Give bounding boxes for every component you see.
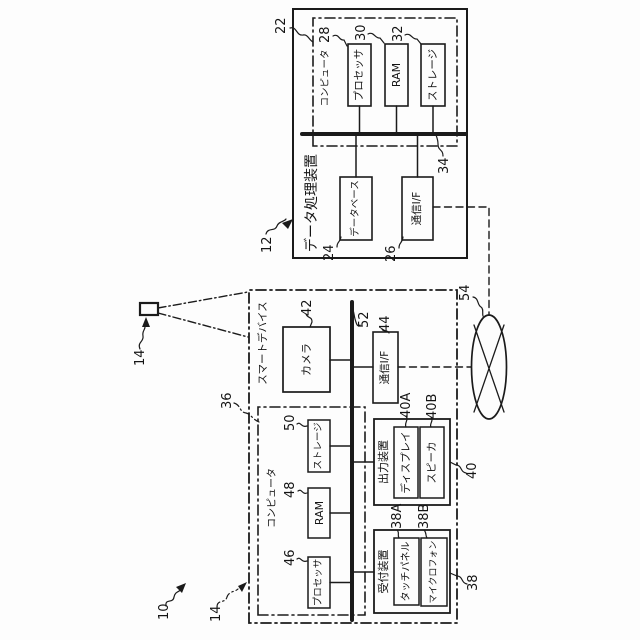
data-processing-device-label: データ処理装置 [304,142,319,252]
ref-50: 50 [284,414,297,431]
microphone-label: マイクロフォン [421,538,447,606]
camera-label: カメラ [283,327,330,392]
ref-40A: 40A [400,393,413,418]
ref-14-device: 14 [210,605,223,622]
server-storage-label: ストレージ [421,44,445,106]
database-label: データベース [340,177,372,240]
speaker-label: スピーカ [420,427,444,498]
device-processor-label: プロセッサ [308,557,330,608]
reception-device-label: 受付装置 [377,530,390,613]
ref-46: 46 [284,549,297,566]
ref-10: 10 [158,603,171,620]
arrowhead-14-camera [142,317,150,327]
ref-44: 44 [379,315,392,332]
ref-30: 30 [355,24,368,41]
device-comm-if-label: 通信I/F [373,332,398,403]
ref-24: 24 [323,244,336,261]
ref-26: 26 [385,245,398,262]
ref-22: 22 [275,17,288,34]
ref-48: 48 [284,481,297,498]
ref-14-camera: 14 [134,349,147,366]
ref-52: 52 [358,311,371,328]
leader-arrowheads [142,219,293,593]
ref-32: 32 [392,25,405,42]
ref-38A: 38A [391,504,404,529]
server-processor-label: プロセッサ [348,44,371,106]
ref-42: 42 [301,299,314,316]
ref-40B: 40B [426,394,439,419]
server-computer-label: コンピュータ [320,50,332,106]
camera-sightline-2 [158,313,248,337]
ref-38: 38 [467,574,480,591]
ref-40: 40 [466,462,479,479]
device-ram-label: RAM [308,488,330,538]
server-ram-label: RAM [385,44,408,106]
smart-device-label: スマートデバイス [257,297,270,389]
patent-figure: データ処理装置 コンピュータ プロセッサ RAM ストレージ データベース 通信… [0,0,640,640]
device-computer-label: コンピュータ [266,466,279,530]
server-comm-if-label: 通信I/F [402,177,433,240]
ref-36: 36 [221,392,234,409]
figure-rotated-stage: データ処理装置 コンピュータ プロセッサ RAM ストレージ データベース 通信… [0,0,640,640]
external-camera-icon [140,303,158,315]
ref-28: 28 [319,26,332,43]
ref-54: 54 [459,284,472,301]
device-storage-label: ストレージ [308,420,330,472]
network-symbol-cross [474,325,504,412]
ref-12: 12 [261,236,274,253]
camera-sightline-1 [158,292,248,308]
output-device-label: 出力装置 [377,419,390,505]
arrowhead-14-device [238,582,247,592]
touch-panel-label: タッチパネル [394,538,419,605]
ref-38B: 38B [418,504,431,529]
ref-34: 34 [438,157,451,174]
display-label: ディスプレイ [394,427,418,498]
